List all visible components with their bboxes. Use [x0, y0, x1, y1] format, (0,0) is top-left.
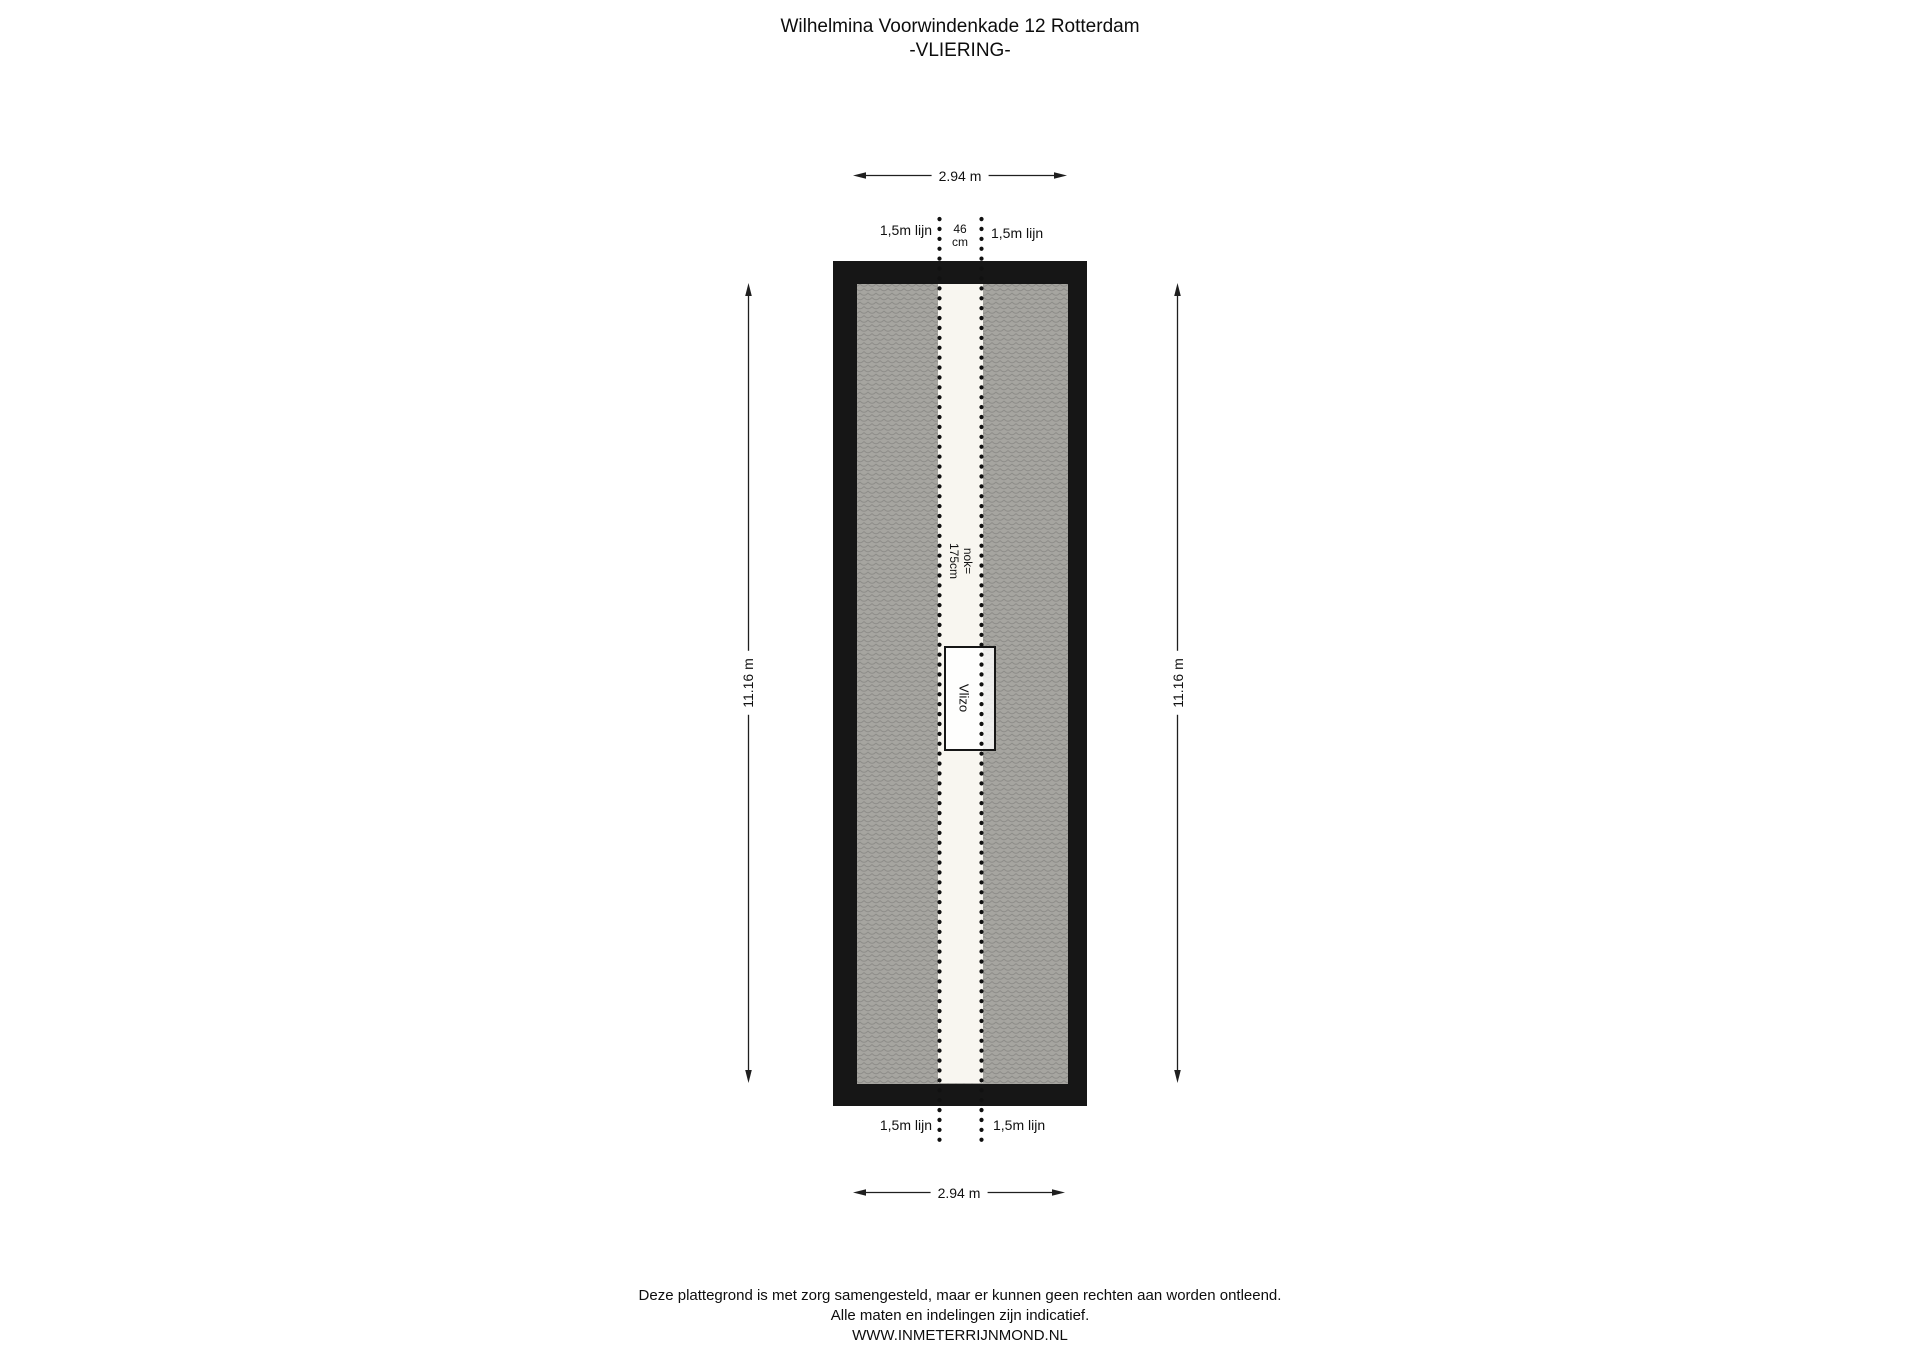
ridge-height-line1: nok=	[961, 543, 975, 579]
arrow-bottom-right	[1052, 1189, 1065, 1196]
dim-label-left-height: 11.16 m	[740, 651, 756, 715]
disclaimer: Deze plattegrond is met zorg samengestel…	[0, 1286, 1920, 1346]
dim-label-right-height: 11.16 m	[1170, 651, 1186, 715]
label-ridge-height: nok= 175cm	[947, 543, 975, 579]
dim-label-bottom-width: 2.94 m	[931, 1185, 988, 1201]
disclaimer-line1: Deze plattegrond is met zorg samengestel…	[0, 1286, 1920, 1306]
plan-title: Wilhelmina Voorwindenkade 12 Rotterdam -…	[0, 15, 1920, 63]
label-bottom-right-height-line: 1,5m lijn	[993, 1117, 1045, 1133]
label-ridge-width: 46 cm	[952, 223, 968, 249]
arrow-right-bottom	[1174, 1070, 1181, 1083]
plan-title-address: Wilhelmina Voorwindenkade 12 Rotterdam	[0, 15, 1920, 39]
floorplan-graphics	[0, 0, 1920, 1358]
arrow-left-bottom	[745, 1070, 752, 1083]
arrow-left-top	[745, 283, 752, 296]
label-bottom-left-height-line: 1,5m lijn	[880, 1117, 932, 1133]
disclaimer-line2: Alle maten en indelingen zijn indicatief…	[0, 1306, 1920, 1326]
label-top-right-height-line: 1,5m lijn	[991, 225, 1043, 241]
ridge-width-unit: cm	[952, 236, 968, 249]
floorplan-page: Wilhelmina Voorwindenkade 12 Rotterdam -…	[0, 0, 1920, 1358]
arrow-bottom-left	[853, 1189, 866, 1196]
arrow-top-left	[853, 172, 866, 179]
label-vlizo: Vlizo	[957, 684, 972, 712]
disclaimer-website: WWW.INMETERRIJNMOND.NL	[0, 1326, 1920, 1346]
dim-label-top-width: 2.94 m	[932, 168, 989, 184]
arrow-top-right	[1054, 172, 1067, 179]
ridge-height-line2: 175cm	[947, 543, 961, 579]
label-top-left-height-line: 1,5m lijn	[880, 222, 932, 238]
plan-title-floor: -VLIERING-	[0, 39, 1920, 63]
arrow-right-top	[1174, 283, 1181, 296]
